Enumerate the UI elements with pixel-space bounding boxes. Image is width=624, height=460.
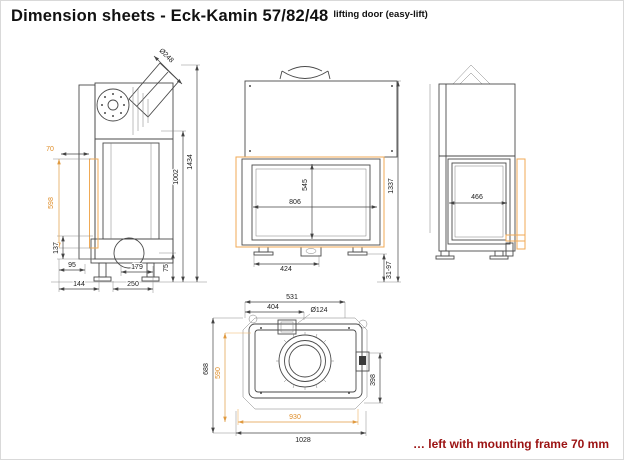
mounting-frame-front [236, 157, 384, 247]
dim-door-width: 806 [289, 199, 301, 206]
dim-air-inlet-diameter: Ø124 [310, 307, 327, 314]
dim-front-total-height: 1337 [388, 178, 395, 194]
mounting-frame-note: … left with mounting frame 70 mm [413, 437, 609, 451]
side-back-panel [79, 85, 95, 259]
flue-opening-top [279, 335, 331, 387]
side-view-drawing: 70 598 137 95 144 179 250 75 1002 1434 Ø… [46, 47, 207, 293]
dim-404: 404 [267, 304, 279, 311]
dim-body-height: 1002 [173, 169, 180, 185]
dim-top-frame-width: 930 [289, 414, 301, 421]
dim-95: 95 [68, 262, 76, 269]
top-outer-frame [243, 318, 367, 409]
flue-pipe [129, 63, 179, 117]
right-leg [441, 251, 449, 256]
front-door-glass [252, 165, 370, 240]
side-leg [99, 263, 106, 277]
dim-frame-height: 598 [48, 197, 55, 209]
right-leg [495, 251, 503, 256]
dim-leg-height: 75 [163, 264, 170, 272]
dim-total-depth: 688 [203, 363, 210, 375]
dim-base-width: 424 [280, 266, 292, 273]
right-door-glass [452, 163, 506, 240]
dim-door-height: 545 [302, 179, 309, 191]
side-body [95, 83, 173, 259]
dim-total-width: 1028 [295, 437, 311, 444]
front-upper-body [245, 81, 397, 157]
dim-144: 144 [73, 281, 85, 288]
dim-531: 531 [286, 294, 298, 301]
dimension-sheet-page: Dimension sheets - Eck-Kamin 57/82/48 li… [0, 0, 624, 460]
side-view-dimensions: 70 598 137 95 144 179 250 75 1002 1434 Ø… [46, 47, 200, 293]
front-view-dimensions: 545 806 424 1337 31-97 [253, 81, 401, 282]
dim-179: 179 [131, 264, 143, 271]
right-view-drawing: 466 [430, 65, 525, 259]
flue-saucer [282, 71, 328, 79]
dim-250: 250 [127, 281, 139, 288]
dim-base-height: 137 [53, 242, 60, 254]
front-leg [259, 247, 268, 252]
front-view-drawing: 545 806 424 1337 31-97 [236, 67, 401, 283]
right-door-frame [448, 159, 510, 244]
technical-drawing: 70 598 137 95 144 179 250 75 1002 1434 Ø… [1, 1, 623, 459]
dim-398: 398 [370, 374, 377, 386]
dim-frame-depth: 70 [46, 146, 54, 153]
dim-leg-adjust: 31-97 [386, 261, 393, 279]
right-body [439, 84, 515, 251]
front-door-frame [242, 159, 380, 245]
top-view-drawing: 531 404 Ø124 688 590 930 1028 398 [203, 294, 383, 444]
dim-total-height: 1434 [187, 154, 194, 170]
right-view-dimensions: 466 [449, 194, 507, 203]
front-leg [353, 247, 362, 252]
dim-top-frame-depth: 590 [215, 367, 222, 379]
mounting-frame-side [90, 159, 99, 248]
dim-right-door-width: 466 [471, 194, 483, 201]
